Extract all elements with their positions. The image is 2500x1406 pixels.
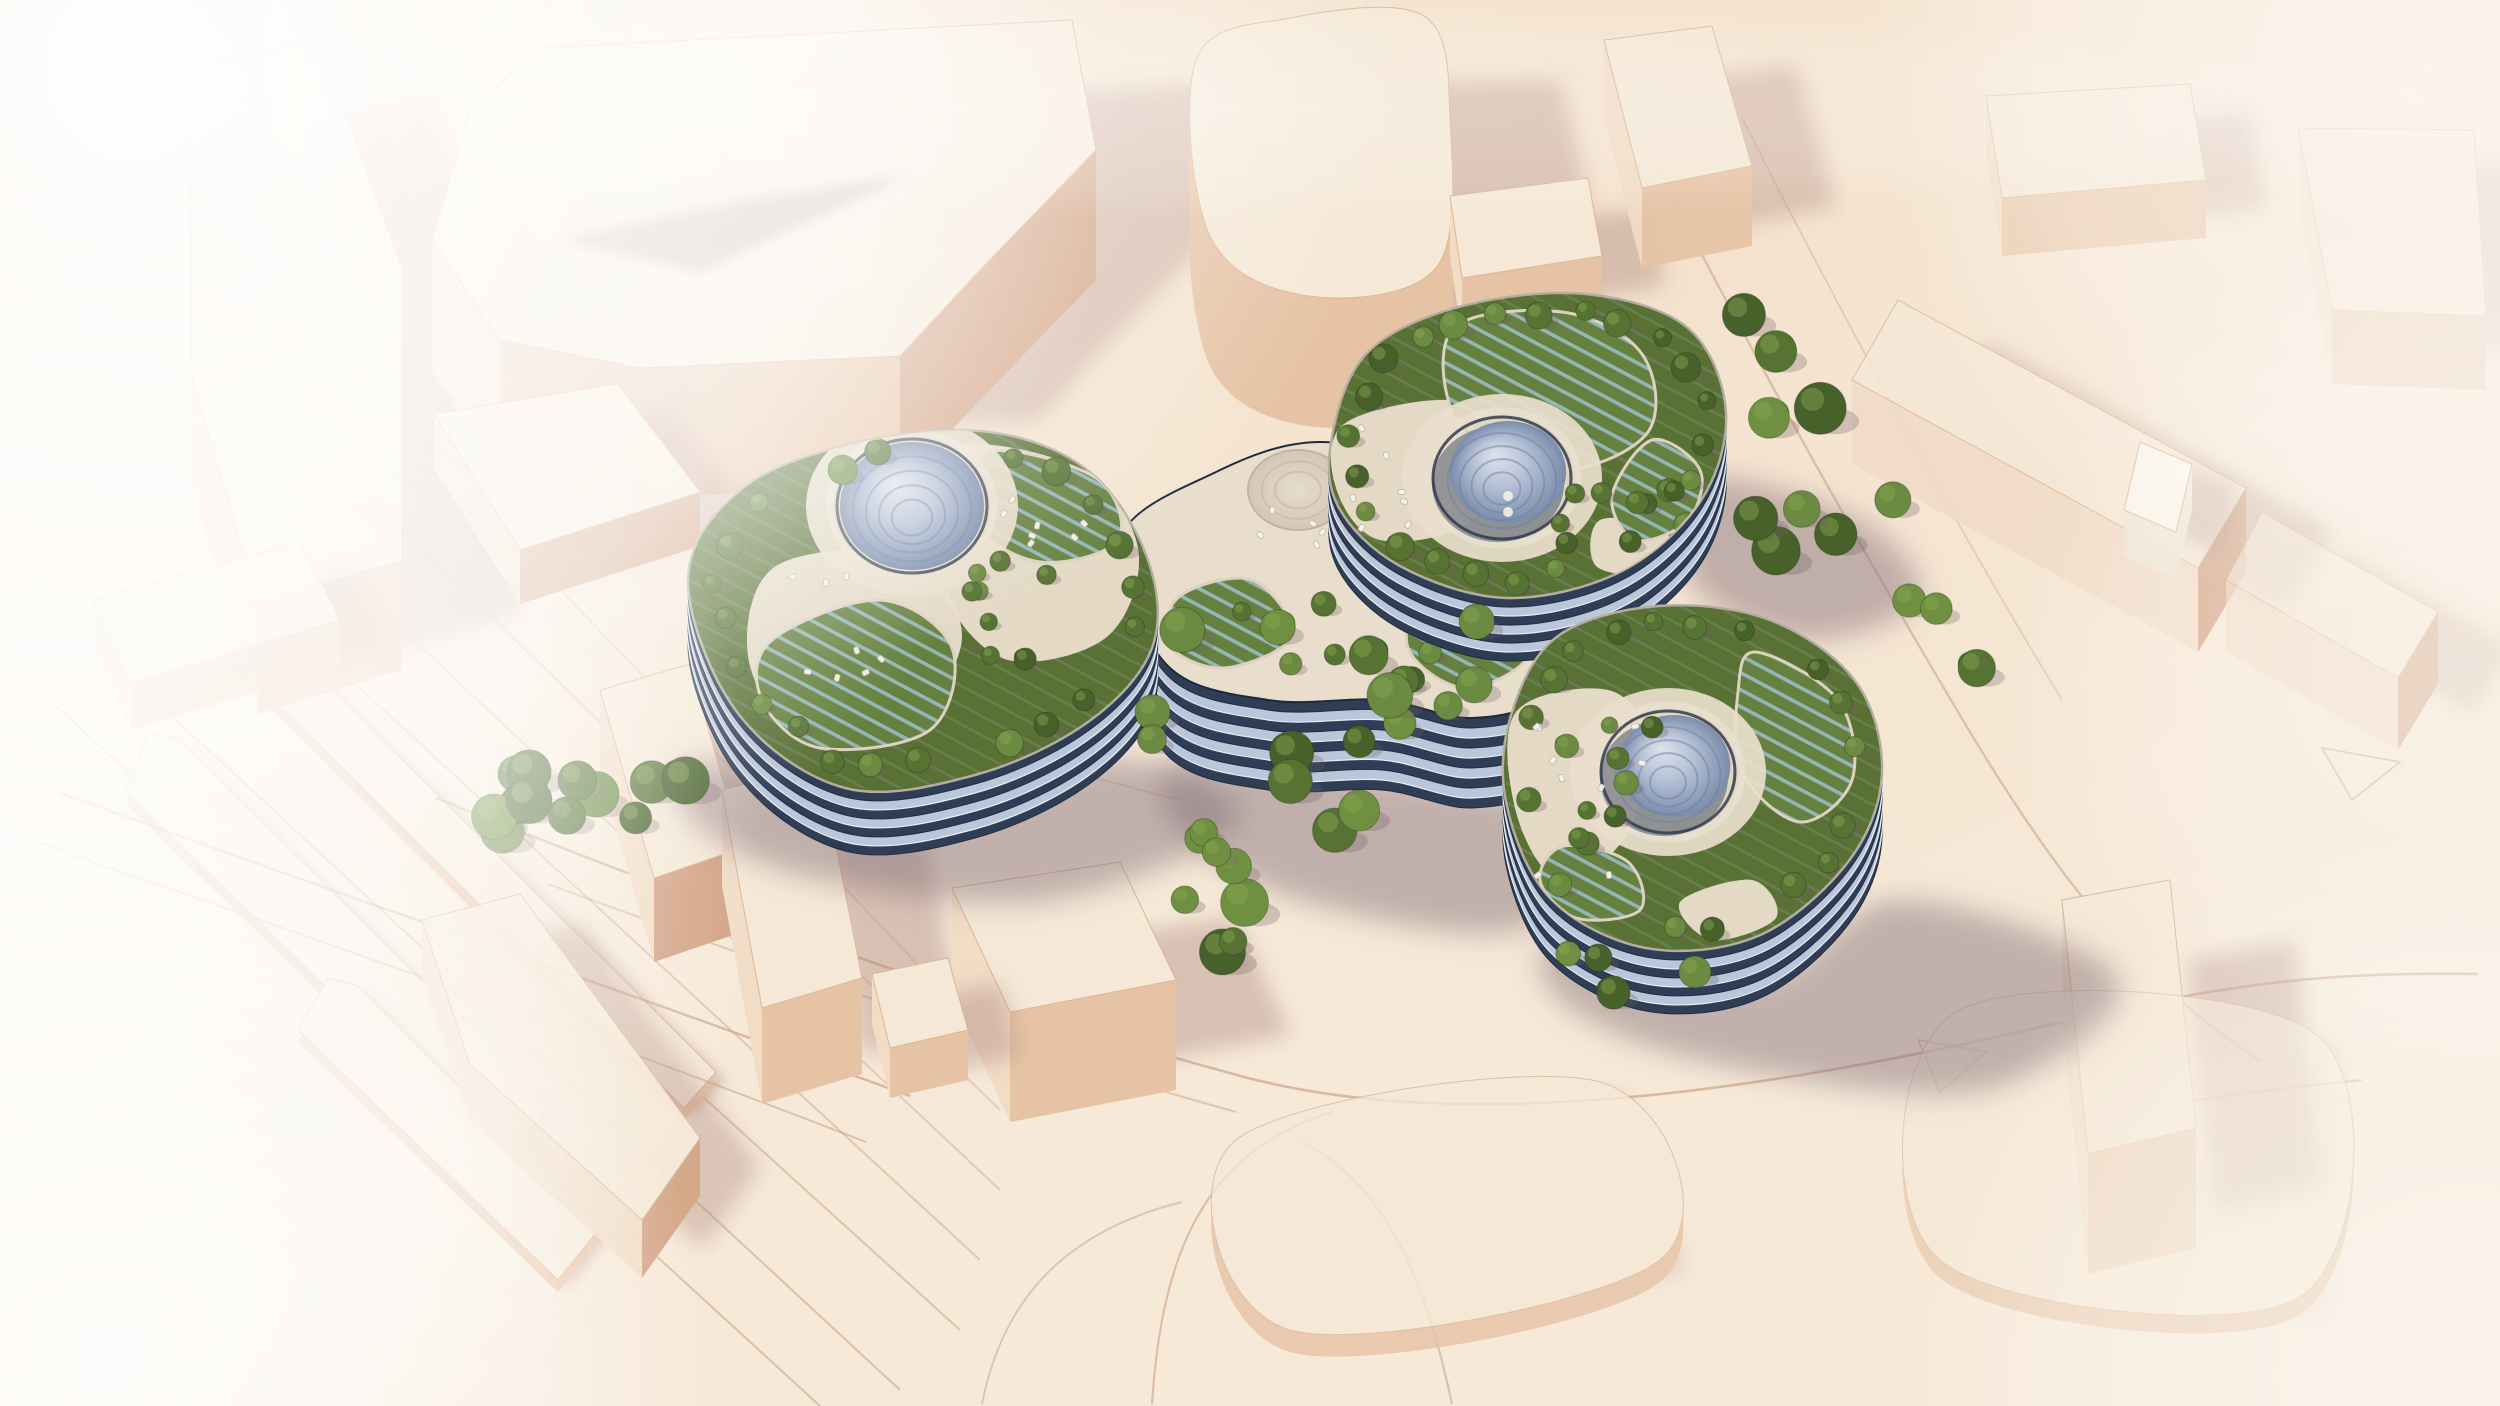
roof-furniture	[1638, 760, 1646, 766]
glass-courtyard-dome	[1570, 688, 1766, 856]
roof-furniture	[1383, 452, 1389, 460]
roof-furniture	[1269, 506, 1275, 514]
roof-furniture	[1606, 871, 1611, 878]
roof-furniture	[1398, 489, 1405, 495]
architectural-aerial-render	[0, 0, 2500, 1406]
site-render-canvas	[0, 0, 2500, 1406]
